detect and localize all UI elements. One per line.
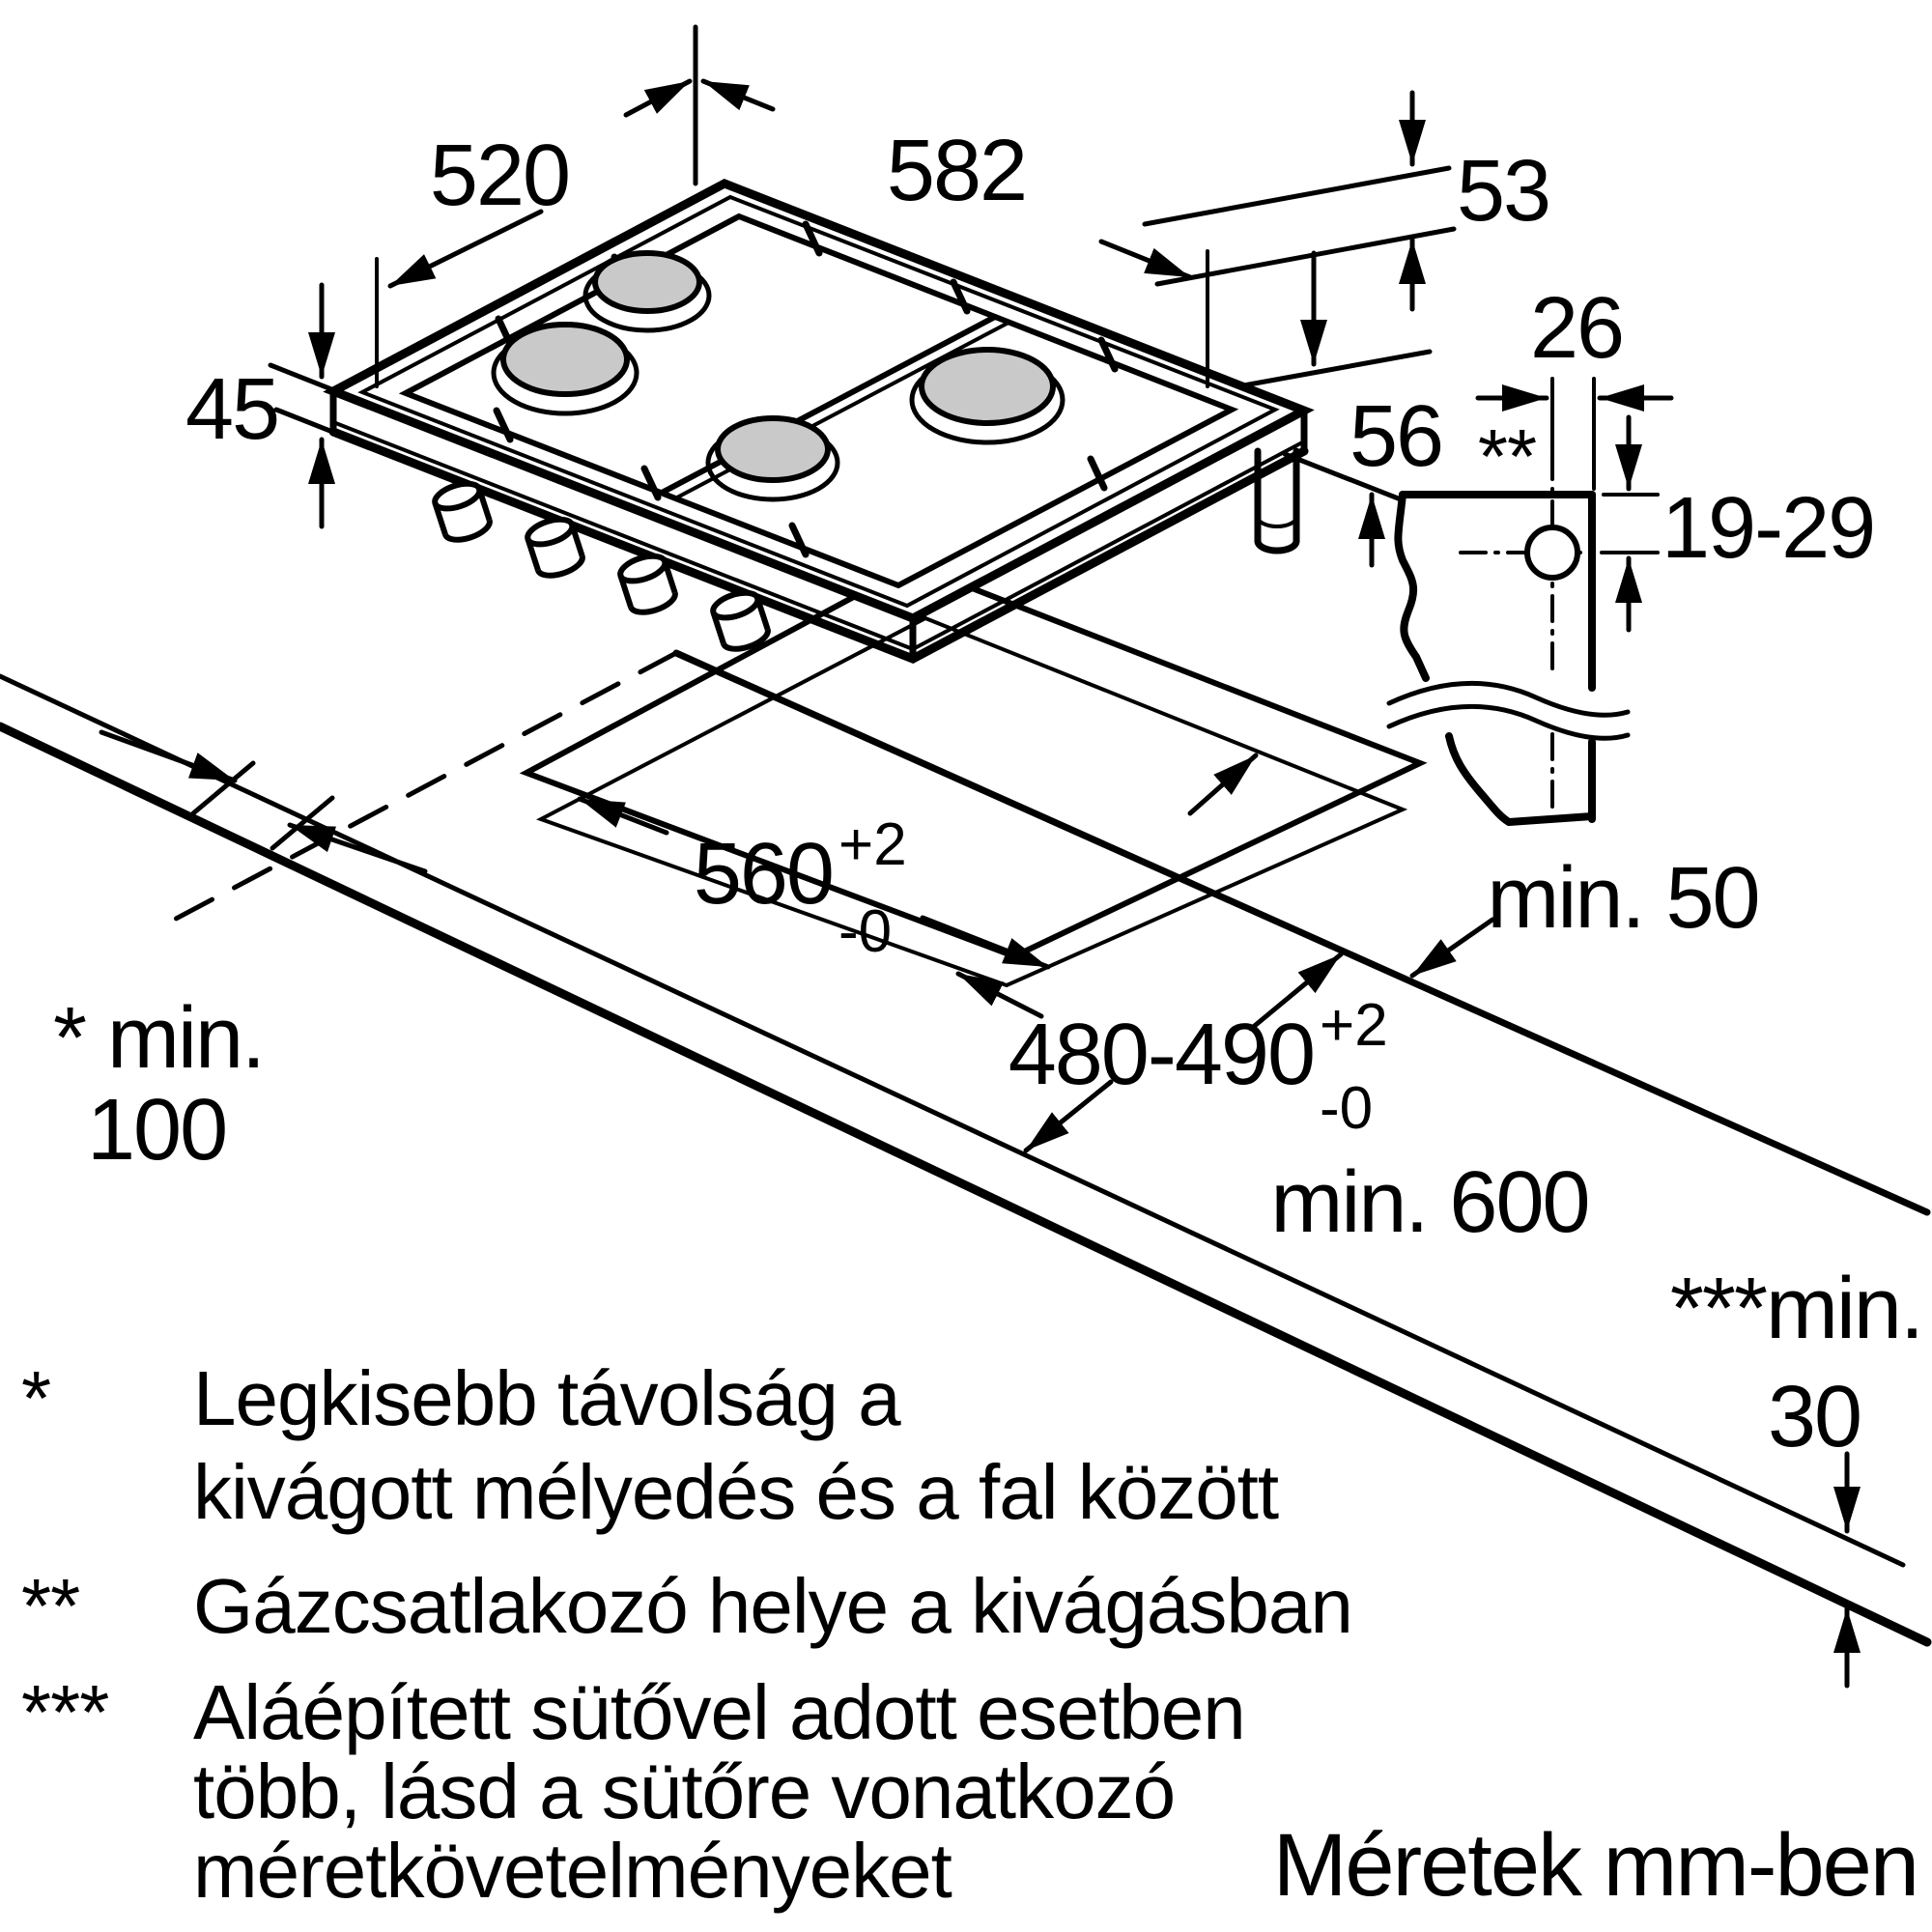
hob-width-label: 582 <box>887 123 1026 219</box>
edge-53-label: 53 <box>1457 143 1549 240</box>
footnote-3-marker: *** <box>21 1669 108 1755</box>
cutout-width-label: 560 <box>694 826 833 923</box>
burner-cap-back-left <box>595 253 699 311</box>
cutout-width-tol-minus: -0 <box>838 898 892 965</box>
clearance-side-label: * min. <box>53 990 264 1087</box>
hob-depth-label: 520 <box>430 128 569 224</box>
cutout-width-tol-plus: +2 <box>838 811 907 878</box>
footnote-1-marker: * <box>21 1355 50 1441</box>
clearance-front-label: min. 600 <box>1270 1154 1588 1251</box>
burner-cap-front-left <box>503 325 627 394</box>
clearance-back-label: min. 50 <box>1487 850 1758 947</box>
footnote-3-line-1: Aláépített sütővel adott esetben <box>193 1669 1245 1755</box>
footnote-2-marker: ** <box>21 1563 79 1649</box>
hob-height-label: 45 <box>185 361 278 458</box>
burner-cap-back-right <box>922 350 1053 423</box>
units-note: Méretek mm-ben <box>1273 1816 1918 1915</box>
edge-56-label: 56 <box>1350 388 1442 485</box>
cutout-depth-label: 480-490 <box>1009 1007 1314 1103</box>
gas-marker-label: ** <box>1478 413 1536 499</box>
gas-connection-point <box>1527 527 1577 578</box>
clearance-side-value: 100 <box>87 1082 226 1179</box>
gas-offset-label: 26 <box>1530 280 1623 377</box>
footnote-3-line-3: méretkövetelményeket <box>193 1828 952 1914</box>
burner-cap-front-right <box>718 418 828 480</box>
cutout-depth-tol-plus: +2 <box>1320 992 1388 1059</box>
footnote-1-line-2: kivágott mélyedés és a fal között <box>193 1449 1279 1535</box>
clearance-oven-label: ***min. <box>1670 1261 1922 1357</box>
footnote-1-line-1: Legkisebb távolság a <box>193 1355 901 1441</box>
gas-height-range-label: 19-29 <box>1662 480 1874 577</box>
footnote-3-line-2: több, lásd a sütőre vonatkozó <box>193 1748 1175 1834</box>
cutout-depth-tol-minus: -0 <box>1320 1075 1373 1142</box>
installation-diagram: 520 582 45 53 56 26 ** <box>0 0 1932 1932</box>
clearance-oven-value: 30 <box>1768 1369 1861 1465</box>
footnote-2-line-1: Gázcsatlakozó helye a kivágásban <box>193 1563 1352 1649</box>
